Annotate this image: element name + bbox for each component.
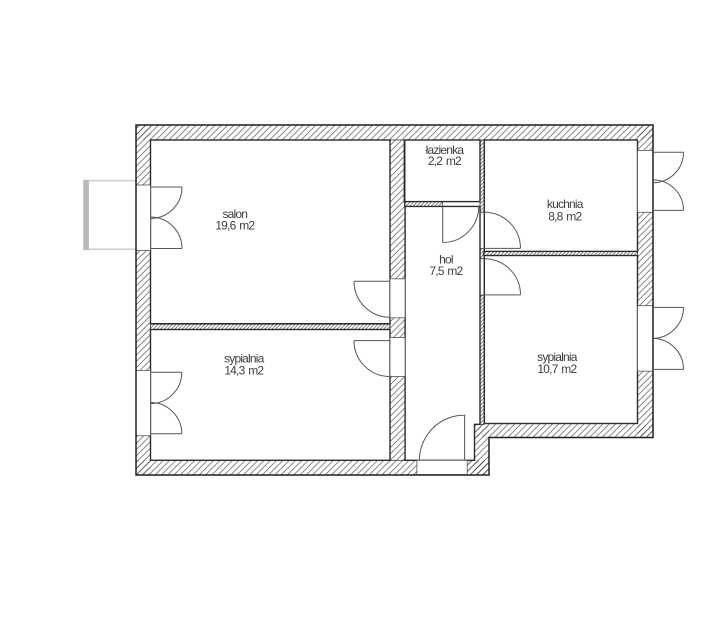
svg-text:2,2 m2: 2,2 m2 [428,154,462,168]
svg-text:7,5 m2: 7,5 m2 [429,264,463,278]
svg-text:10,7 m2: 10,7 m2 [537,362,577,376]
svg-text:19,6 m2: 19,6 m2 [215,219,255,233]
svg-text:14,3 m2: 14,3 m2 [224,364,264,378]
svg-text:8,8 m2: 8,8 m2 [548,209,582,223]
